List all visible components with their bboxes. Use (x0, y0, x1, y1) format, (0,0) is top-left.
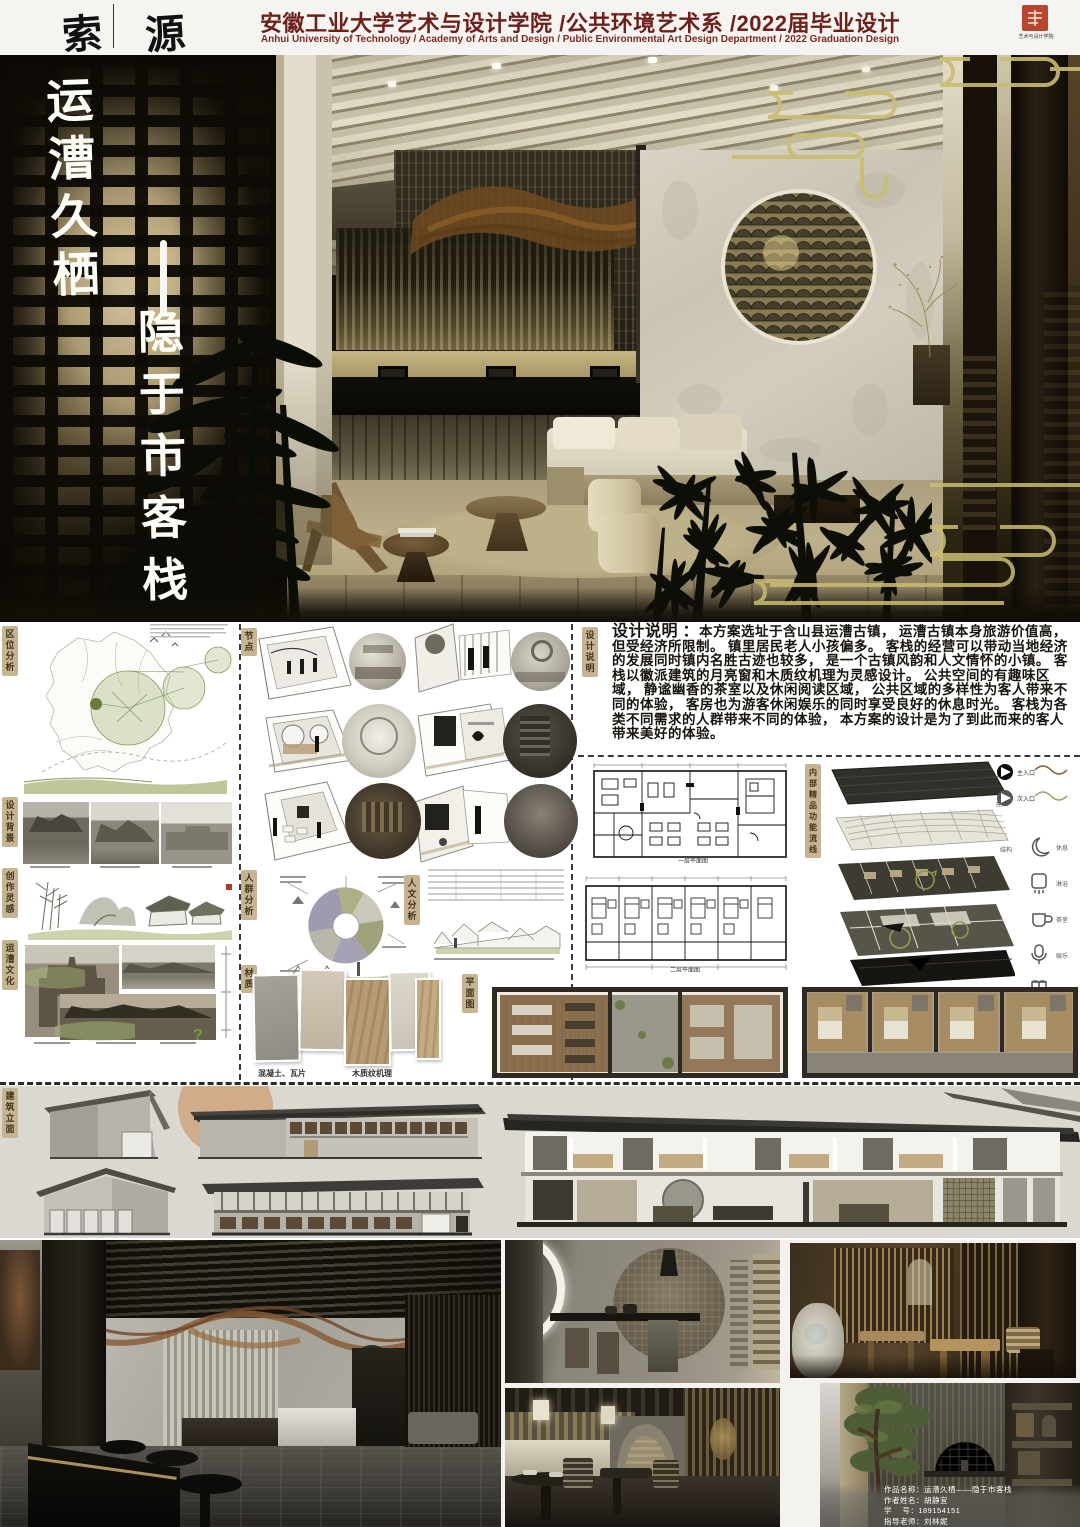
svg-text:二层平面图: 二层平面图 (670, 967, 700, 972)
svg-text:淋浴: 淋浴 (1056, 880, 1068, 888)
svg-text:一层平面图: 一层平面图 (678, 858, 708, 863)
svg-text:茶室: 茶室 (1056, 916, 1068, 924)
svg-text:结构: 结构 (1000, 846, 1012, 854)
svg-text:次入口: 次入口 (1017, 795, 1035, 803)
svg-text:休息: 休息 (1056, 844, 1068, 852)
svg-text:主入口: 主入口 (1017, 769, 1035, 777)
svg-text:娱乐: 娱乐 (1056, 952, 1068, 960)
